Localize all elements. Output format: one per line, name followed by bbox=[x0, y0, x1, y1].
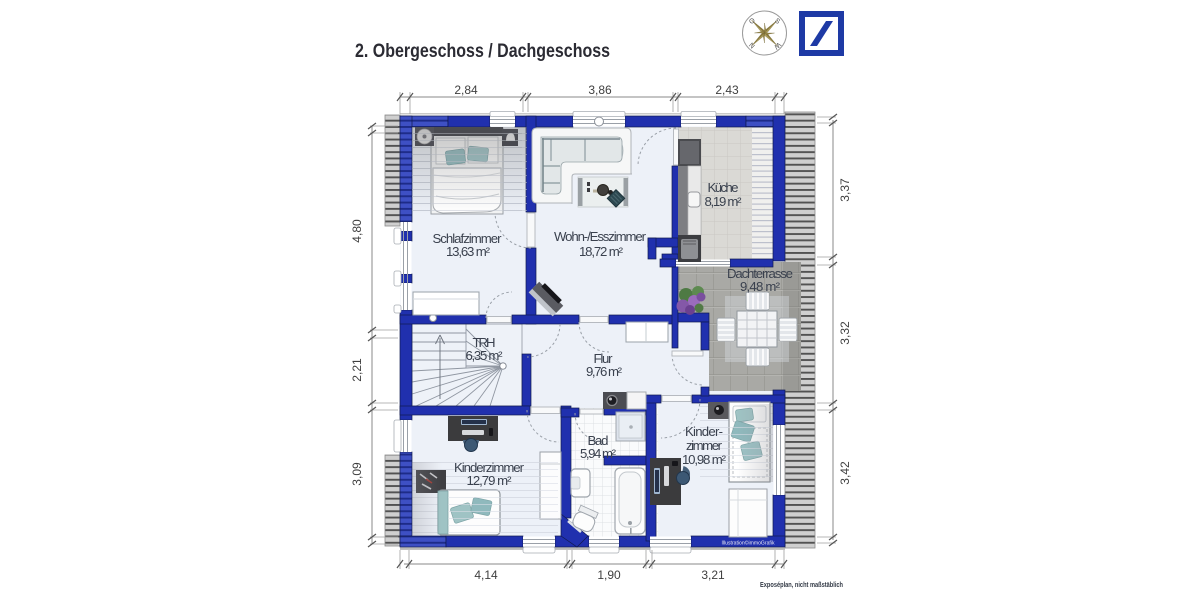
svg-text:Wohn-/Esszimmer: Wohn-/Esszimmer bbox=[554, 229, 647, 244]
svg-text:2,84: 2,84 bbox=[454, 83, 478, 97]
svg-text:2,43: 2,43 bbox=[715, 83, 739, 97]
svg-text:3,42: 3,42 bbox=[838, 461, 852, 485]
svg-text:1,90: 1,90 bbox=[597, 568, 621, 582]
svg-text:8,19 m²: 8,19 m² bbox=[705, 194, 743, 209]
svg-text:9,76 m²: 9,76 m² bbox=[586, 364, 623, 379]
svg-text:3,09: 3,09 bbox=[350, 462, 364, 486]
svg-text:10,98 m²: 10,98 m² bbox=[682, 452, 727, 467]
svg-text:18,72 m²: 18,72 m² bbox=[579, 244, 624, 259]
svg-text:13,63 m²: 13,63 m² bbox=[446, 244, 491, 259]
svg-text:9,48 m²: 9,48 m² bbox=[740, 279, 781, 294]
svg-text:4,14: 4,14 bbox=[474, 568, 498, 582]
svg-text:3,37: 3,37 bbox=[838, 178, 852, 202]
svg-text:Exposéplan, nicht maßstäblich: Exposéplan, nicht maßstäblich bbox=[760, 580, 843, 589]
svg-text:2. Obergeschoss / Dachgeschoss: 2. Obergeschoss / Dachgeschoss bbox=[355, 40, 610, 62]
svg-text:2,21: 2,21 bbox=[350, 358, 364, 382]
svg-text:5,94 m²: 5,94 m² bbox=[580, 446, 617, 461]
svg-text:12,79 m²: 12,79 m² bbox=[467, 473, 513, 488]
svg-text:zimmer: zimmer bbox=[686, 438, 723, 453]
svg-text:3,21: 3,21 bbox=[701, 568, 725, 582]
svg-text:6,35 m²: 6,35 m² bbox=[466, 348, 504, 363]
svg-text:4,80: 4,80 bbox=[350, 219, 364, 243]
svg-text:3,32: 3,32 bbox=[838, 321, 852, 345]
svg-text:Küche: Küche bbox=[708, 180, 739, 195]
svg-text:Illustration©immoGrafik: Illustration©immoGrafik bbox=[722, 540, 776, 547]
svg-text:Kinder-: Kinder- bbox=[685, 424, 723, 439]
svg-text:3,86: 3,86 bbox=[588, 83, 612, 97]
